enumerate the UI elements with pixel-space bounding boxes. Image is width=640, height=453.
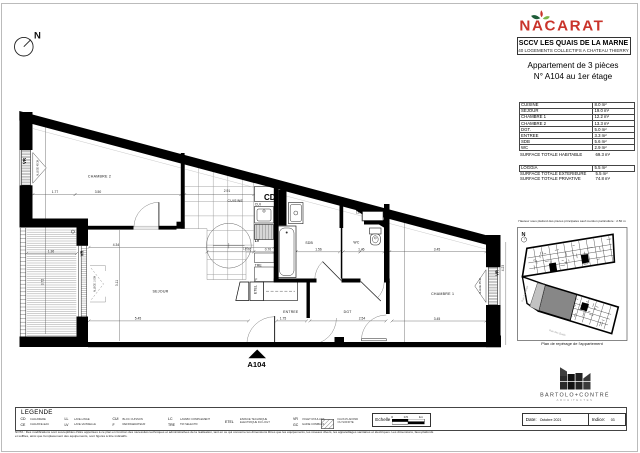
- svg-text:2.91: 2.91: [224, 189, 231, 193]
- svg-text:DGT: DGT: [344, 310, 352, 314]
- svg-text:CHAMBRE 1: CHAMBRE 1: [431, 292, 454, 296]
- svg-text:VR: VR: [494, 270, 499, 276]
- svg-text:SEJOUR: SEJOUR: [152, 289, 168, 293]
- svg-text:WC: WC: [353, 240, 359, 244]
- svg-text:ALLEGE 45CM: ALLEGE 45CM: [37, 160, 40, 176]
- svg-text:4.34: 4.34: [113, 243, 120, 247]
- svg-text:ETEL: ETEL: [254, 285, 258, 294]
- svg-text:F: F: [255, 278, 257, 282]
- svg-text:1.56: 1.56: [315, 248, 322, 252]
- svg-text:3.45: 3.45: [434, 317, 441, 321]
- svg-text:2.54: 2.54: [359, 317, 366, 321]
- svg-text:VR: VR: [80, 251, 85, 257]
- svg-text:N: N: [34, 31, 41, 42]
- svg-text:CUI: CUI: [255, 203, 261, 207]
- svg-text:CHAMBRE 2: CHAMBRE 2: [88, 175, 111, 179]
- svg-text:1.50: 1.50: [243, 246, 249, 250]
- svg-text:1.36: 1.36: [48, 249, 55, 253]
- svg-text:ENTREE: ENTREE: [283, 310, 299, 314]
- svg-text:ALLEGE 45CM: ALLEGE 45CM: [479, 278, 482, 294]
- svg-text:3.72: 3.72: [41, 279, 45, 286]
- svg-text:1.46: 1.46: [358, 248, 365, 252]
- svg-text:3.50: 3.50: [95, 190, 102, 194]
- svg-text:3.45: 3.45: [434, 247, 441, 251]
- svg-text:ARCHITECTES: ARCHITECTES: [557, 398, 594, 402]
- svg-text:SDB: SDB: [305, 241, 313, 245]
- svg-text:CUISINE: CUISINE: [228, 199, 244, 203]
- svg-text:0.70: 0.70: [265, 248, 272, 252]
- svg-text:A104: A104: [247, 360, 266, 369]
- svg-text:1.75: 1.75: [280, 317, 287, 321]
- svg-text:5.45: 5.45: [135, 317, 142, 321]
- svg-text:ALLEGE 1.00M: ALLEGE 1.00M: [94, 276, 97, 292]
- svg-text:VR: VR: [22, 157, 27, 164]
- svg-text:3.11: 3.11: [115, 280, 119, 286]
- svg-text:4.23: 4.23: [501, 265, 505, 272]
- svg-text:LV: LV: [255, 239, 260, 243]
- svg-text:NACARAT: NACARAT: [519, 17, 604, 33]
- svg-text:1.77: 1.77: [52, 190, 59, 194]
